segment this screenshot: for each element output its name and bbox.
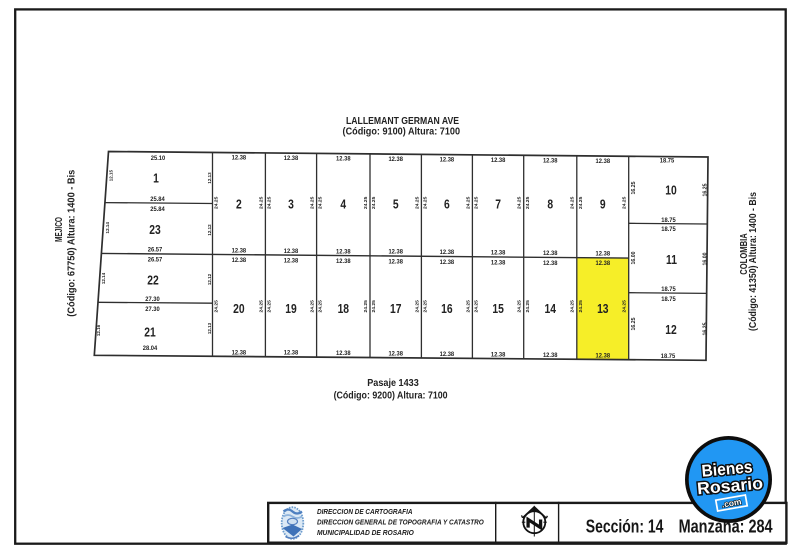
svg-text:24.25: 24.25 (414, 196, 419, 209)
svg-text:(Código: 67750) Altura: 1400 -: (Código: 67750) Altura: 1400 - Bis (67, 169, 78, 316)
svg-text:24.25: 24.25 (363, 196, 368, 209)
svg-text:16.00: 16.00 (703, 252, 709, 265)
svg-text:24.25: 24.25 (214, 300, 219, 313)
svg-text:12.38: 12.38 (388, 351, 403, 358)
svg-text:24.25: 24.25 (258, 300, 263, 313)
svg-text:16: 16 (441, 302, 453, 316)
svg-text:(Código: 9100) Altura: 7100: (Código: 9100) Altura: 7100 (343, 127, 461, 138)
svg-text:24.25: 24.25 (267, 196, 272, 209)
svg-text:12.12: 12.12 (207, 224, 212, 236)
svg-text:22: 22 (147, 273, 159, 287)
svg-text:12.38: 12.38 (336, 350, 351, 357)
svg-text:13: 13 (597, 302, 609, 316)
svg-text:12.38: 12.38 (440, 249, 455, 256)
svg-text:12.38: 12.38 (543, 158, 558, 165)
svg-text:24.25: 24.25 (525, 300, 530, 313)
svg-text:6: 6 (444, 197, 450, 211)
svg-text:24.25: 24.25 (474, 196, 479, 209)
svg-text:20: 20 (233, 302, 245, 316)
svg-text:24.25: 24.25 (414, 300, 419, 313)
svg-text:DIRECCION GENERAL DE TOPOGRAFI: DIRECCION GENERAL DE TOPOGRAFIA Y CATAST… (317, 517, 484, 526)
svg-text:12.38: 12.38 (596, 251, 611, 258)
svg-text:12.13: 12.13 (207, 322, 212, 334)
svg-text:24.25: 24.25 (465, 196, 470, 209)
svg-text:12.38: 12.38 (440, 259, 455, 266)
svg-text:12.38: 12.38 (491, 250, 506, 257)
svg-text:24.25: 24.25 (474, 300, 479, 313)
svg-text:24.25: 24.25 (622, 300, 627, 313)
svg-text:12.38: 12.38 (284, 350, 299, 357)
svg-text:16.25: 16.25 (702, 322, 708, 335)
svg-text:26.57: 26.57 (148, 256, 163, 263)
svg-text:4: 4 (340, 197, 346, 211)
svg-text:21: 21 (144, 325, 156, 339)
svg-text:17: 17 (390, 302, 401, 316)
svg-text:24.25: 24.25 (578, 300, 583, 313)
svg-text:Sección: 14: Sección: 14 (586, 515, 664, 536)
svg-text:11: 11 (666, 253, 677, 267)
svg-text:24.25: 24.25 (371, 300, 376, 313)
svg-text:24.25: 24.25 (267, 300, 272, 313)
svg-text:12.14: 12.14 (101, 272, 106, 284)
svg-text:12.13: 12.13 (207, 172, 212, 184)
svg-text:12.38: 12.38 (543, 352, 558, 359)
svg-text:12.38: 12.38 (336, 248, 351, 255)
svg-text:27.30: 27.30 (145, 296, 160, 303)
svg-text:9: 9 (600, 197, 606, 211)
svg-text:12.38: 12.38 (440, 157, 455, 164)
svg-text:12.38: 12.38 (543, 250, 558, 257)
svg-text:24.25: 24.25 (423, 300, 428, 313)
svg-text:24.25: 24.25 (423, 196, 428, 209)
svg-text:18.75: 18.75 (661, 226, 676, 233)
svg-text:24.25: 24.25 (258, 196, 263, 209)
svg-text:18.75: 18.75 (661, 217, 676, 224)
svg-text:5: 5 (393, 197, 399, 211)
svg-text:(Código: 41350) Altura: 1400 -: (Código: 41350) Altura: 1400 - Bis (748, 192, 759, 331)
svg-text:27.30: 27.30 (145, 306, 160, 313)
svg-text:MUNICIPALIDAD DE ROSARIO: MUNICIPALIDAD DE ROSARIO (317, 528, 414, 537)
svg-text:12.38: 12.38 (284, 248, 299, 255)
svg-text:18.75: 18.75 (660, 158, 675, 165)
svg-text:12: 12 (665, 323, 677, 337)
svg-text:12.38: 12.38 (284, 258, 299, 265)
svg-text:24.25: 24.25 (310, 196, 315, 209)
svg-text:Pasaje 1433: Pasaje 1433 (367, 378, 419, 389)
svg-text:26.57: 26.57 (148, 246, 163, 253)
svg-text:12.14: 12.14 (105, 222, 110, 234)
svg-text:12.16: 12.16 (96, 324, 101, 336)
svg-text:12.38: 12.38 (388, 258, 403, 265)
svg-text:15: 15 (492, 302, 504, 316)
svg-text:18: 18 (338, 302, 350, 316)
svg-text:12.38: 12.38 (388, 249, 403, 256)
svg-text:12.38: 12.38 (232, 257, 247, 264)
svg-text:12.38: 12.38 (596, 352, 611, 359)
svg-text:DIRECCION DE CARTOGRAFIA: DIRECCION DE CARTOGRAFIA (317, 507, 413, 516)
svg-text:16.25: 16.25 (631, 181, 637, 194)
svg-text:25.84: 25.84 (150, 206, 165, 213)
svg-text:28.04: 28.04 (143, 345, 158, 352)
svg-text:12.38: 12.38 (232, 247, 247, 254)
svg-text:12.38: 12.38 (543, 260, 558, 267)
svg-text:25.10: 25.10 (151, 155, 166, 162)
svg-text:7: 7 (495, 197, 501, 211)
svg-text:12.38: 12.38 (491, 157, 506, 164)
svg-text:25.84: 25.84 (150, 196, 165, 203)
svg-text:24.25: 24.25 (214, 196, 219, 209)
svg-text:12.38: 12.38 (596, 260, 611, 267)
svg-text:2: 2 (236, 197, 242, 211)
svg-text:12.38: 12.38 (491, 259, 506, 266)
svg-text:24.25: 24.25 (517, 196, 522, 209)
svg-text:24.25: 24.25 (570, 196, 575, 209)
svg-text:12.38: 12.38 (388, 156, 403, 163)
svg-text:12.38: 12.38 (596, 158, 611, 165)
svg-text:12.38: 12.38 (284, 155, 299, 162)
svg-text:24.25: 24.25 (465, 300, 470, 313)
svg-text:12.38: 12.38 (336, 156, 351, 163)
svg-text:18.75: 18.75 (661, 353, 676, 360)
svg-text:24.25: 24.25 (517, 300, 522, 313)
svg-text:24.25: 24.25 (371, 196, 376, 209)
svg-text:16.25: 16.25 (631, 317, 637, 330)
svg-text:24.25: 24.25 (318, 196, 323, 209)
svg-text:16.00: 16.00 (631, 251, 637, 264)
svg-text:MEJICO: MEJICO (54, 217, 65, 242)
svg-text:12.38: 12.38 (440, 351, 455, 358)
svg-text:1: 1 (153, 171, 159, 185)
svg-text:14: 14 (544, 302, 556, 316)
svg-text:24.25: 24.25 (622, 196, 627, 209)
svg-text:(Código: 9200) Altura: 7100: (Código: 9200) Altura: 7100 (334, 390, 448, 401)
svg-text:12.38: 12.38 (336, 258, 351, 265)
svg-text:24.25: 24.25 (570, 300, 575, 313)
svg-text:16.25: 16.25 (702, 183, 708, 196)
svg-text:12.12: 12.12 (207, 273, 212, 285)
svg-text:24.25: 24.25 (525, 196, 530, 209)
svg-text:8: 8 (547, 197, 553, 211)
svg-text:24.25: 24.25 (363, 300, 368, 313)
svg-text:24.25: 24.25 (318, 300, 323, 313)
svg-text:18.75: 18.75 (661, 296, 676, 303)
svg-text:3: 3 (288, 197, 294, 211)
svg-text:24.25: 24.25 (578, 196, 583, 209)
svg-text:10: 10 (665, 184, 677, 198)
svg-text:23: 23 (149, 223, 161, 237)
svg-text:24.25: 24.25 (310, 300, 315, 313)
svg-text:12.38: 12.38 (232, 155, 247, 162)
svg-text:12.38: 12.38 (232, 349, 247, 356)
svg-text:12.15: 12.15 (109, 169, 114, 181)
svg-text:19: 19 (285, 302, 297, 316)
svg-text:12.38: 12.38 (491, 351, 506, 358)
svg-text:18.75: 18.75 (661, 286, 676, 293)
